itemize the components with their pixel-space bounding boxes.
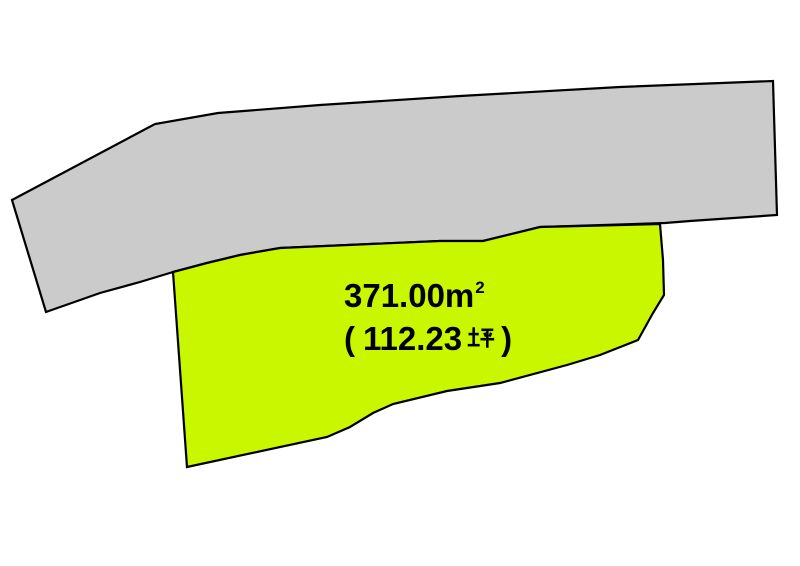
- open-paren: (: [344, 320, 355, 357]
- tsubo-character-glyph: [466, 323, 495, 352]
- close-paren: ): [501, 320, 512, 357]
- area-sqm-value: 371.00m: [344, 277, 474, 314]
- plot-diagram: 371.00m2 (112.23 ): [0, 0, 800, 566]
- area-tsubo-line: (112.23 ): [344, 320, 512, 357]
- area-tsubo-value: 112.23: [363, 320, 462, 357]
- area-label: 371.00m2 (112.23 ): [344, 277, 512, 357]
- area-sqm-line: 371.00m2: [344, 277, 512, 320]
- superscript-2: 2: [475, 269, 484, 306]
